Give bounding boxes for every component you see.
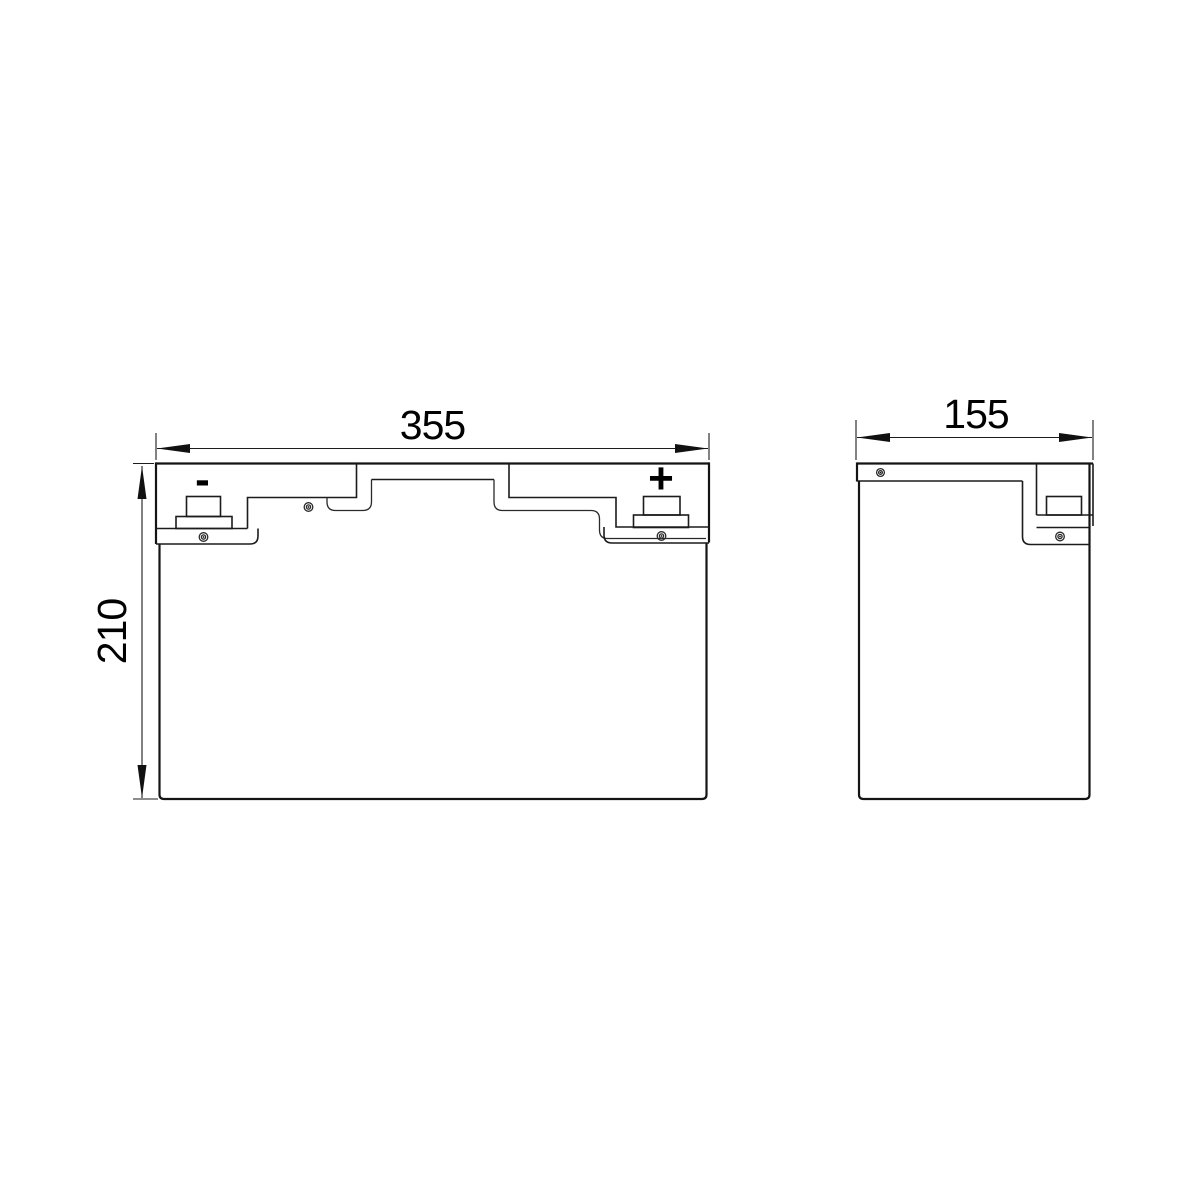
arrow-down-icon (138, 765, 147, 798)
dimension-depth: 155 (856, 391, 1093, 460)
negative-terminal-base (176, 517, 232, 529)
side-terminal-strip (1037, 515, 1094, 528)
height-dimension-label: 210 (89, 599, 135, 665)
dimension-width: 355 (156, 402, 709, 460)
positive-terminal-base (634, 515, 689, 528)
front-right-channel (494, 480, 706, 539)
screw-icon (1056, 532, 1065, 541)
front-left-channel (327, 480, 372, 511)
side-terminal-post (1047, 497, 1082, 516)
width-dimension-label: 355 (400, 402, 466, 448)
front-body-outline (160, 543, 707, 800)
drawing-svg: - + (0, 0, 1200, 1200)
arrow-left-icon (157, 444, 190, 453)
height-extension-lines (133, 464, 158, 800)
front-right-step (509, 464, 709, 528)
arrow-left-icon (857, 433, 890, 442)
positive-terminal-label: + (648, 454, 674, 503)
front-left-flange (156, 529, 258, 545)
side-view (857, 462, 1093, 799)
dimension-height: 210 (89, 464, 158, 800)
side-body-outline (859, 464, 1090, 800)
battery-dimension-drawing: - + (0, 0, 1200, 1200)
negative-terminal-label: - (195, 455, 210, 504)
screw-icon (877, 469, 885, 477)
depth-dimension-label: 155 (943, 391, 1009, 437)
front-right-flange (604, 527, 709, 543)
arrow-up-icon (138, 466, 147, 499)
front-left-step (248, 464, 357, 529)
arrow-right-icon (1059, 433, 1092, 442)
screw-icon (199, 533, 208, 542)
screw-icon (304, 503, 313, 512)
arrow-right-icon (675, 444, 708, 453)
front-view: - + (156, 454, 709, 799)
